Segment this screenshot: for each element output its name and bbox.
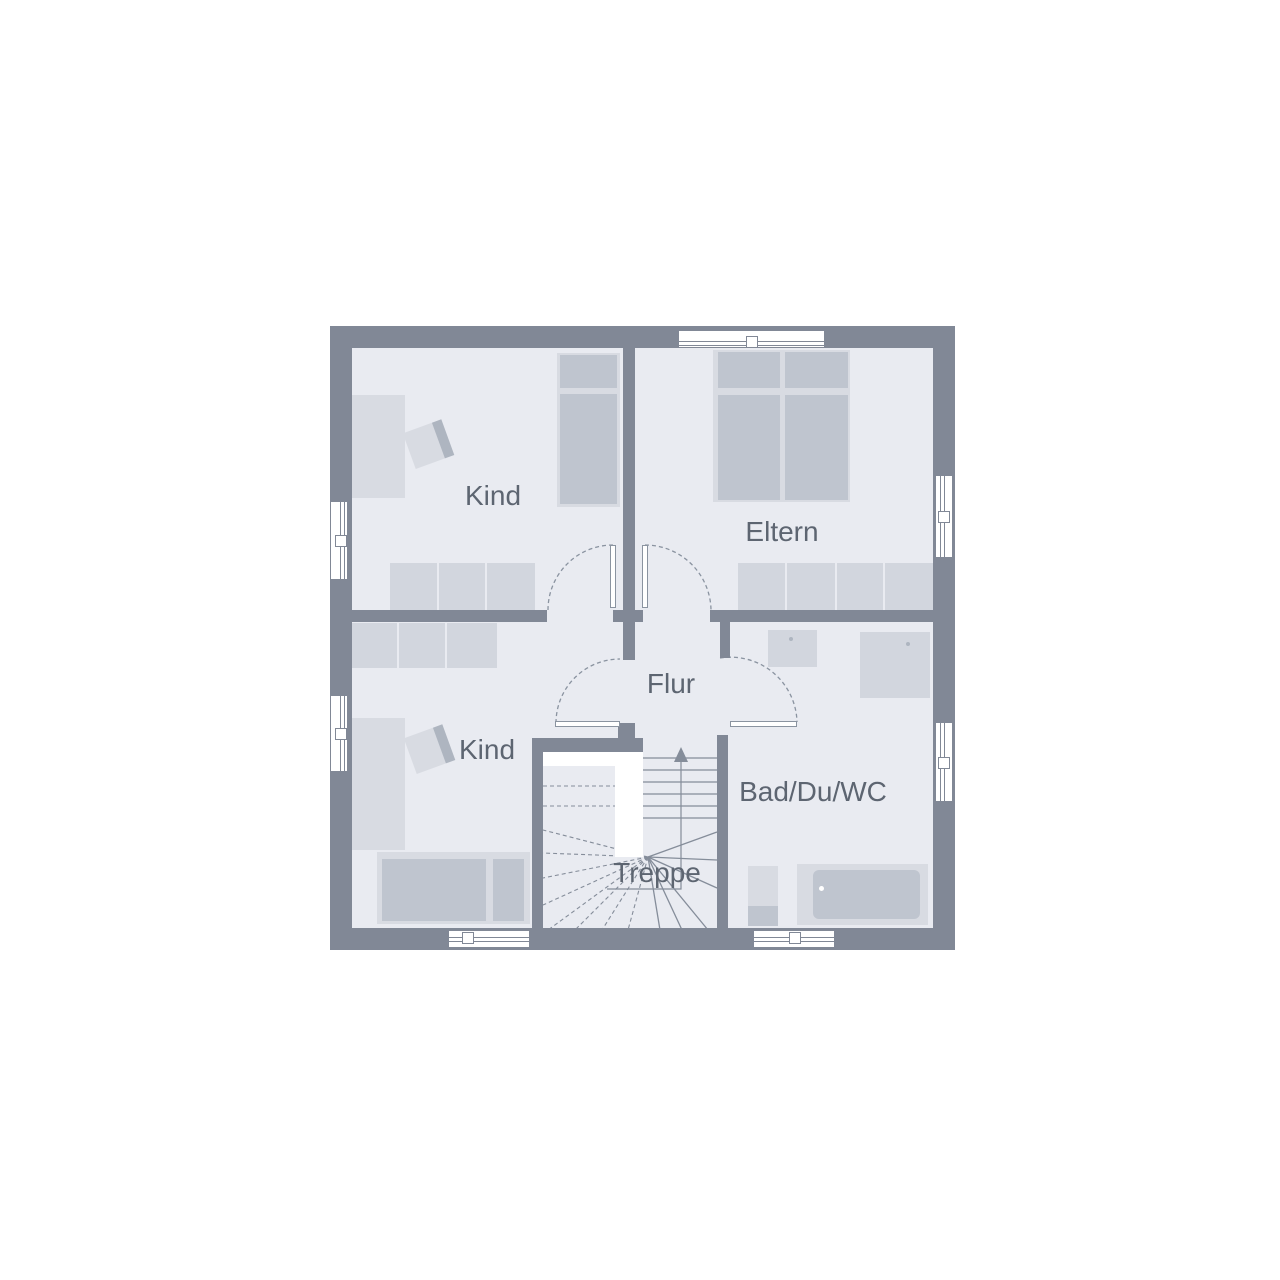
door-swing-eltern bbox=[645, 545, 711, 610]
wall-stair-door-stub bbox=[618, 723, 635, 738]
wall-stair-right bbox=[717, 735, 728, 950]
outer-wall-left bbox=[330, 326, 352, 950]
window-top bbox=[678, 330, 825, 348]
window-left-lower bbox=[330, 695, 348, 772]
door-swing-kind-lower bbox=[556, 659, 620, 723]
window-handle bbox=[938, 757, 950, 769]
stair-tread bbox=[648, 832, 717, 857]
door-leaf-eltern bbox=[642, 545, 648, 608]
outer-wall-top bbox=[330, 326, 955, 348]
window-handle bbox=[938, 511, 950, 523]
window-right-lower bbox=[935, 722, 953, 802]
wall-stair-top bbox=[532, 738, 643, 752]
door-leaf-kind-upper bbox=[610, 545, 616, 608]
window-frame-line bbox=[449, 941, 529, 942]
window-left-upper bbox=[330, 501, 348, 580]
door-leaf-kind-lower bbox=[555, 721, 620, 727]
outer-wall-bottom bbox=[330, 928, 955, 950]
window-right-upper bbox=[935, 475, 953, 558]
door-swing-bad bbox=[720, 657, 797, 722]
window-bottom-left bbox=[448, 930, 530, 948]
floor-plan: Kind Eltern Kind Flur Bad/Du/WC Treppe bbox=[330, 326, 955, 950]
stair-up-arrow bbox=[674, 747, 688, 762]
room-label-kind-lower: Kind bbox=[459, 734, 515, 766]
door-swing-kind-upper bbox=[548, 545, 613, 610]
wall-eltern-bottom bbox=[710, 610, 933, 622]
room-label-treppe: Treppe bbox=[613, 857, 701, 889]
window-handle bbox=[462, 932, 474, 944]
wall-center-stub bbox=[613, 610, 643, 622]
window-bottom-right bbox=[753, 930, 835, 948]
room-label-eltern: Eltern bbox=[745, 516, 818, 548]
window-handle bbox=[335, 728, 347, 740]
window-handle bbox=[746, 336, 758, 348]
outer-wall-right bbox=[933, 326, 955, 950]
room-label-bad: Bad/Du/WC bbox=[739, 776, 887, 808]
window-handle bbox=[789, 932, 801, 944]
window-handle bbox=[335, 535, 347, 547]
window-frame-line bbox=[449, 937, 529, 938]
wall-stair-left bbox=[532, 738, 543, 950]
wall-kind-upper-bottom bbox=[352, 610, 547, 622]
wall-center-stub-lower bbox=[623, 622, 635, 660]
room-label-kind-upper: Kind bbox=[465, 480, 521, 512]
wall-bad-left-upper bbox=[720, 622, 730, 658]
wall-kind-eltern-divider bbox=[623, 348, 635, 610]
stair-railing-void bbox=[543, 752, 643, 857]
room-label-flur: Flur bbox=[647, 668, 695, 700]
door-leaf-bad bbox=[730, 721, 797, 727]
